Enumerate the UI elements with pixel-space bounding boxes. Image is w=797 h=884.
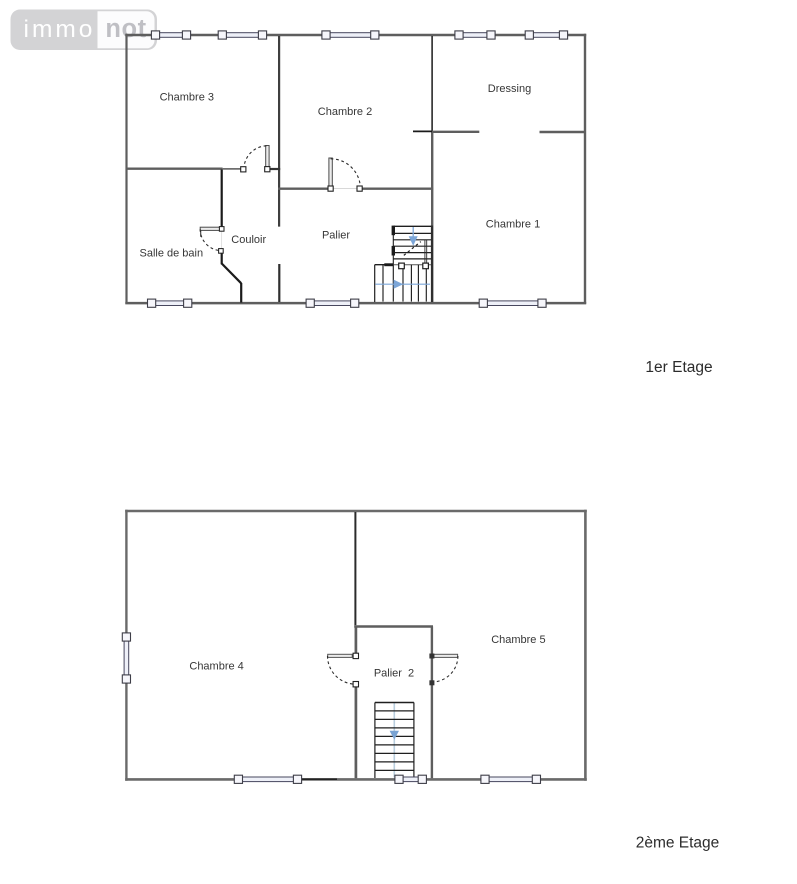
svg-text:2ème Etage: 2ème Etage xyxy=(636,835,720,852)
svg-text:immo: immo xyxy=(24,16,96,43)
svg-text:Couloir: Couloir xyxy=(231,234,266,246)
svg-text:1er Etage: 1er Etage xyxy=(645,359,712,376)
svg-text:Palier: Palier xyxy=(322,230,350,242)
svg-text:Chambre 2: Chambre 2 xyxy=(318,106,372,118)
svg-text:Chambre 4: Chambre 4 xyxy=(189,661,243,673)
svg-text:Dressing: Dressing xyxy=(488,83,531,95)
svg-text:Salle de bain: Salle de bain xyxy=(139,247,203,259)
svg-text:Chambre 3: Chambre 3 xyxy=(160,91,214,103)
svg-text:Palier 2: Palier 2 xyxy=(374,668,414,680)
svg-text:Chambre 5: Chambre 5 xyxy=(491,634,545,646)
svg-text:Chambre 1: Chambre 1 xyxy=(486,219,540,231)
